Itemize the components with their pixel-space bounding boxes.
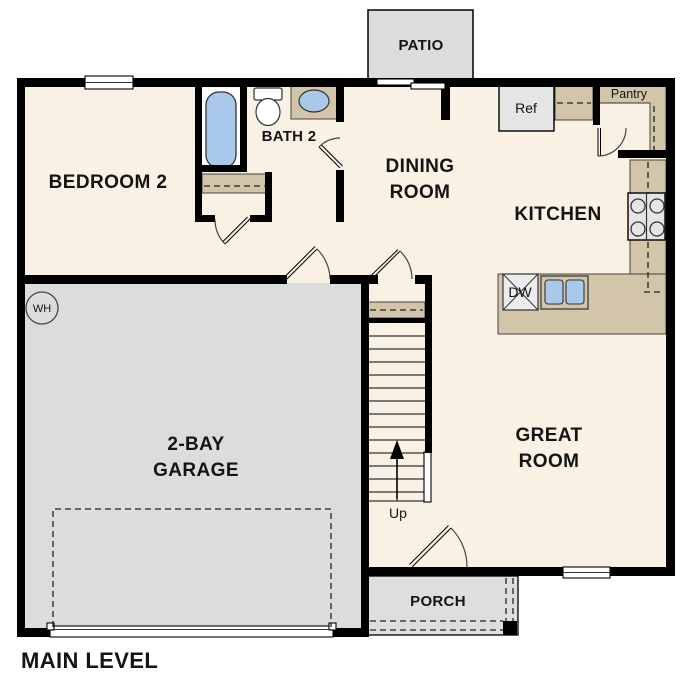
slider-panel-right <box>411 83 445 89</box>
ref-side-cabinet <box>555 83 593 120</box>
room-label-porch: PORCH <box>410 593 466 610</box>
garage-door-track-right <box>329 623 336 630</box>
wall-stair-right <box>425 283 432 453</box>
room-label-bath2: BATH 2 <box>262 128 317 145</box>
wall-tub-bottom <box>195 165 247 172</box>
wall-greatroom-bottom <box>361 567 675 576</box>
wall-bedroom-garage <box>17 275 287 284</box>
floor-plan-svg: BEDROOM 2 BATH 2 DINING ROOM KITCHEN GRE… <box>0 0 687 687</box>
porch-post <box>503 621 517 635</box>
bathroom-sink-symbol <box>299 90 329 112</box>
floor-plan-page: BEDROOM 2 BATH 2 DINING ROOM KITCHEN GRE… <box>0 0 687 687</box>
wall-right <box>666 78 675 576</box>
room-label-dining-1: DINING <box>386 156 455 177</box>
room-label-patio: PATIO <box>398 37 443 54</box>
bedroom-closet-shelf <box>202 174 268 193</box>
wall-pantry-bottom <box>618 150 666 158</box>
garage-floor <box>21 283 365 632</box>
room-label-pantry: Pantry <box>611 87 648 101</box>
wall-stairdoor-stub <box>415 275 432 284</box>
wall-tub-toilet <box>240 87 247 172</box>
label-dishwasher: DW <box>508 284 532 300</box>
label-water-heater: WH <box>33 303 51 315</box>
room-label-dining-2: ROOM <box>390 182 451 203</box>
stair-closet-shelf <box>368 302 425 318</box>
wall-bath-left <box>195 87 202 222</box>
kitchen-sink-basin-right <box>566 280 584 304</box>
wall-bath-right-bottom <box>336 170 344 222</box>
room-label-garage-2: GARAGE <box>153 460 239 481</box>
label-refrigerator: Ref <box>515 100 537 116</box>
stair-handrail <box>424 452 431 502</box>
room-label-greatroom-1: GREAT <box>515 425 582 446</box>
room-label-kitchen: KITCHEN <box>514 204 601 225</box>
wall-garage-right <box>361 277 369 637</box>
garage-door-symbol <box>50 626 333 637</box>
bathtub-symbol <box>206 92 236 168</box>
wall-stair-closet <box>368 318 425 323</box>
wall-ref-pantry-stub <box>593 78 600 125</box>
label-stairs-up: Up <box>389 505 407 521</box>
toilet-bowl-symbol <box>256 99 280 126</box>
wall-beddoor-left <box>195 215 215 222</box>
slider-panel-left <box>377 79 414 85</box>
wall-beddoor-right <box>250 215 272 222</box>
kitchen-sink-basin-left <box>545 280 563 304</box>
wall-bath-right-top <box>336 87 344 122</box>
room-label-greatroom-2: ROOM <box>519 451 580 472</box>
room-label-bedroom2: BEDROOM 2 <box>49 172 168 193</box>
room-label-garage-1: 2-BAY <box>167 434 224 455</box>
level-title: MAIN LEVEL <box>21 648 158 673</box>
wall-closet-right <box>265 172 272 222</box>
wall-left <box>17 78 25 637</box>
